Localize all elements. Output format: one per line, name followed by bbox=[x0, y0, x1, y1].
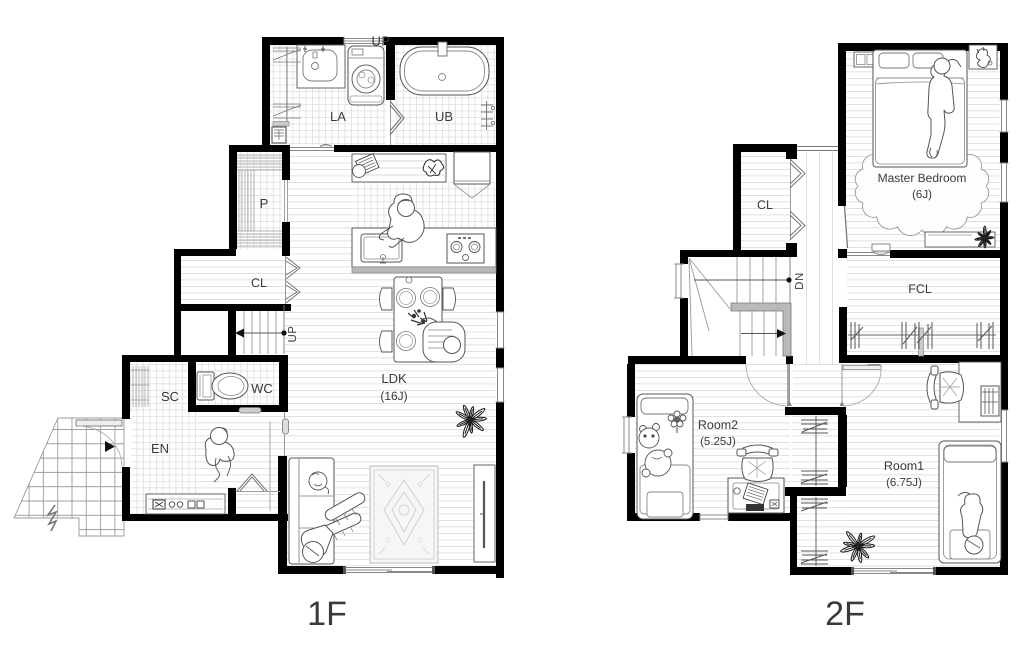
svg-text:DN: DN bbox=[794, 272, 806, 290]
svg-text:UP: UP bbox=[371, 34, 390, 49]
svg-text:LA: LA bbox=[330, 109, 346, 124]
svg-text:CL: CL bbox=[251, 276, 267, 290]
svg-text:FCL: FCL bbox=[908, 282, 932, 296]
svg-text:2F: 2F bbox=[825, 595, 865, 633]
svg-text:(6.75J): (6.75J) bbox=[886, 477, 922, 489]
svg-text:UB: UB bbox=[435, 109, 453, 124]
svg-text:Room2: Room2 bbox=[698, 418, 738, 432]
svg-text:CL: CL bbox=[757, 198, 773, 212]
svg-text:(5.25J): (5.25J) bbox=[700, 436, 736, 448]
svg-text:LDK: LDK bbox=[381, 371, 407, 386]
svg-text:WC: WC bbox=[251, 381, 273, 396]
svg-text:(16J): (16J) bbox=[380, 389, 407, 403]
svg-text:UP: UP bbox=[287, 326, 299, 343]
svg-text:EN: EN bbox=[151, 441, 169, 456]
svg-text:P: P bbox=[260, 196, 269, 211]
svg-text:Master Bedroom: Master Bedroom bbox=[878, 171, 967, 185]
svg-text:SC: SC bbox=[161, 389, 179, 404]
svg-text:1F: 1F bbox=[307, 595, 347, 633]
svg-text:Room1: Room1 bbox=[884, 459, 924, 473]
svg-text:(6J): (6J) bbox=[912, 189, 932, 201]
